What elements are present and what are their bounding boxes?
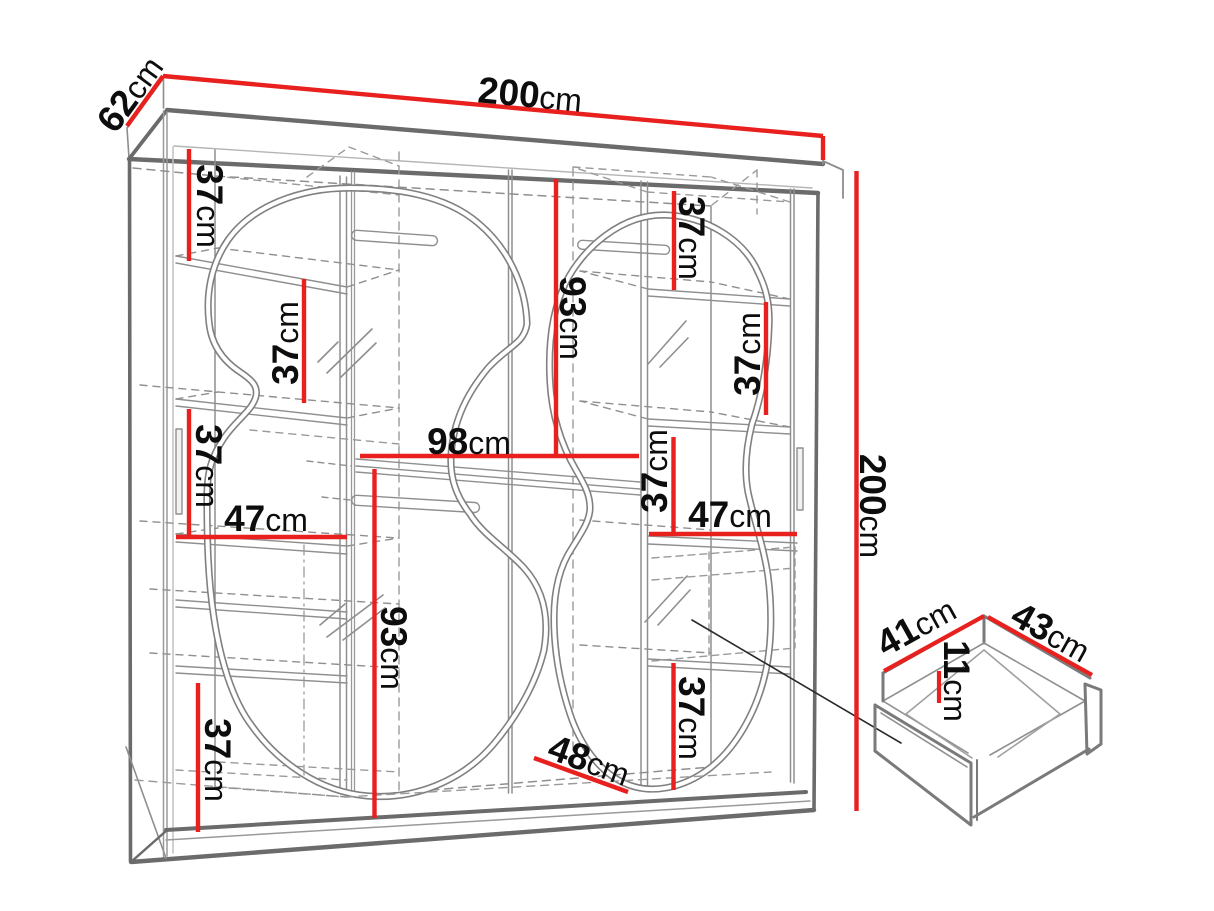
svg-text:11cm: 11cm	[936, 640, 977, 722]
svg-text:37cm: 37cm	[265, 301, 306, 385]
svg-text:200cm: 200cm	[852, 454, 893, 558]
svg-text:47cm: 47cm	[224, 498, 308, 539]
svg-text:37cm: 37cm	[634, 429, 675, 513]
svg-text:37cm: 37cm	[188, 424, 229, 508]
svg-text:37cm: 37cm	[671, 196, 712, 280]
svg-text:37cm: 37cm	[671, 676, 712, 760]
svg-text:47cm: 47cm	[688, 494, 772, 535]
svg-text:37cm: 37cm	[727, 312, 768, 396]
svg-text:98cm: 98cm	[427, 421, 511, 462]
svg-text:37cm: 37cm	[189, 164, 230, 248]
svg-text:37cm: 37cm	[197, 718, 238, 802]
svg-text:93cm: 93cm	[552, 276, 593, 360]
svg-text:93cm: 93cm	[373, 606, 414, 690]
